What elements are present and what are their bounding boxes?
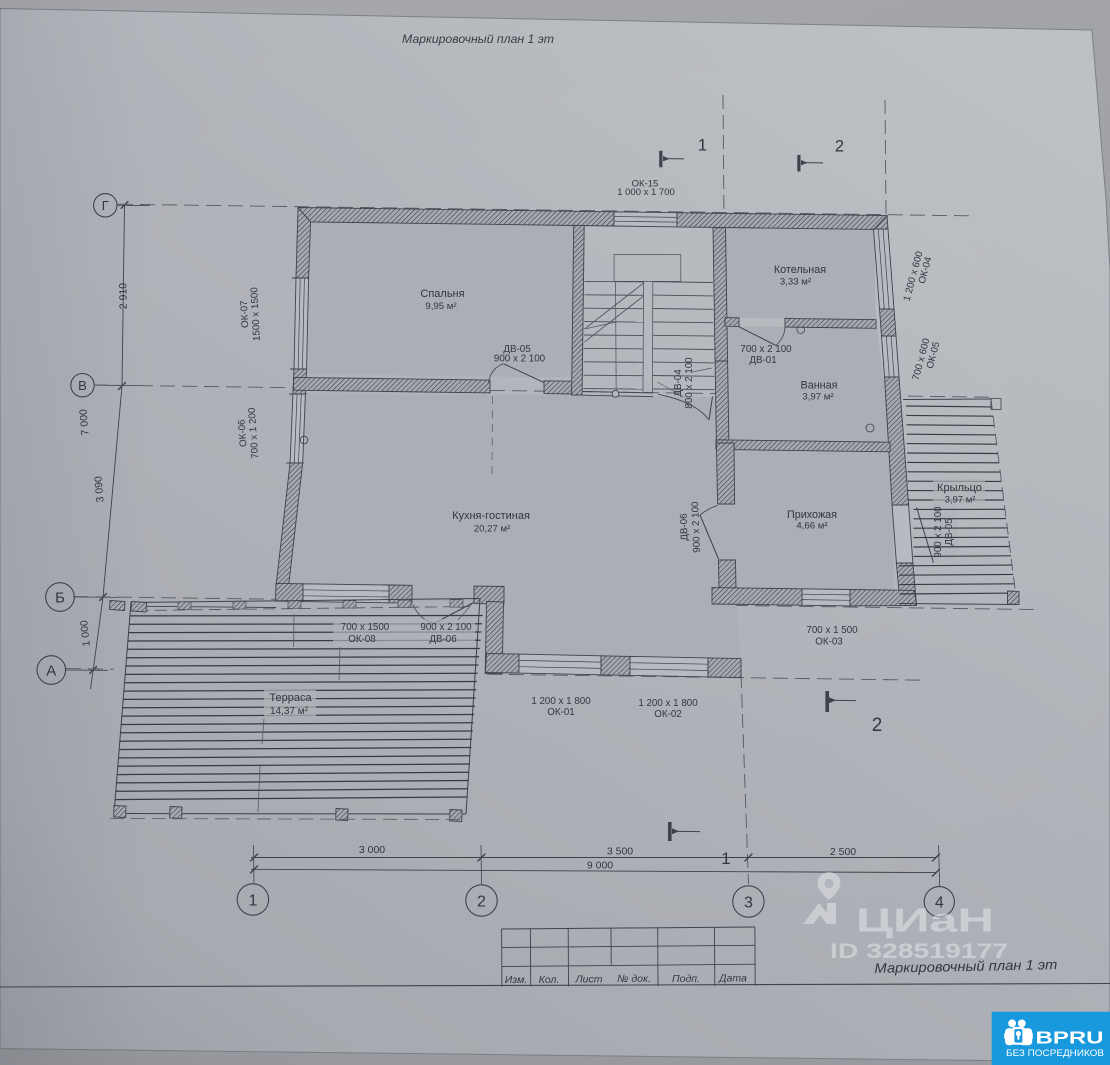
- svg-text:900 х 2 100: 900 х 2 100: [933, 506, 944, 558]
- svg-text:ДВ-04: ДВ-04: [673, 369, 684, 397]
- svg-text:2: 2: [835, 138, 844, 156]
- svg-text:3 500: 3 500: [607, 846, 633, 858]
- svg-text:Изм.: Изм.: [505, 974, 527, 986]
- svg-text:ДВ-06: ДВ-06: [679, 513, 691, 541]
- svg-text:800 х 2 100: 800 х 2 100: [684, 357, 695, 409]
- svg-text:1 200 х 1 800: 1 200 х 1 800: [531, 696, 591, 707]
- svg-text:2 500: 2 500: [830, 846, 856, 858]
- svg-text:ОК-02: ОК-02: [654, 709, 682, 720]
- svg-text:7 000: 7 000: [77, 408, 91, 435]
- svg-text:ОК-03: ОК-03: [815, 637, 843, 648]
- svg-text:В: В: [78, 378, 87, 393]
- svg-text:2: 2: [872, 715, 883, 736]
- svg-text:№ док.: № док.: [617, 973, 651, 985]
- svg-text:700 х 1500: 700 х 1500: [341, 622, 390, 633]
- svg-text:2 910: 2 910: [117, 283, 129, 310]
- svg-text:3,97 м²: 3,97 м²: [802, 392, 834, 403]
- svg-text:Спальня: Спальня: [420, 288, 464, 300]
- svg-text:Котельная: Котельная: [774, 264, 826, 276]
- svg-text:ДВ-05: ДВ-05: [944, 518, 955, 546]
- svg-text:2: 2: [477, 894, 486, 911]
- svg-text:Лист: Лист: [574, 974, 602, 986]
- svg-text:Маркировочный план 1 эт: Маркировочный план 1 эт: [402, 32, 554, 46]
- svg-text:3 090: 3 090: [92, 475, 106, 502]
- svg-text:ДВ-06: ДВ-06: [429, 634, 457, 645]
- svg-text:BPRU: BPRU: [1036, 1028, 1104, 1048]
- svg-text:Терраса: Терраса: [269, 692, 312, 704]
- svg-text:14,37 м²: 14,37 м²: [270, 706, 309, 717]
- svg-text:Г: Г: [102, 198, 109, 213]
- svg-text:9 000: 9 000: [587, 860, 613, 872]
- svg-text:ОК-01: ОК-01: [547, 707, 575, 718]
- svg-text:1 200 х 1 800: 1 200 х 1 800: [638, 698, 698, 709]
- svg-text:1: 1: [248, 893, 257, 910]
- svg-text:ЦИаН: ЦИаН: [856, 902, 994, 939]
- svg-text:700 х 1 500: 700 х 1 500: [806, 625, 858, 636]
- svg-text:БЕЗ ПОСРЕДНИКОВ: БЕЗ ПОСРЕДНИКОВ: [1006, 1048, 1104, 1058]
- svg-text:Ванная: Ванная: [801, 380, 838, 392]
- svg-text:Подп.: Подп.: [672, 973, 700, 985]
- svg-text:ДВ-01: ДВ-01: [749, 355, 776, 366]
- svg-text:4,66 м²: 4,66 м²: [796, 521, 828, 532]
- svg-text:20,27 м²: 20,27 м²: [474, 524, 511, 535]
- svg-text:А: А: [46, 663, 56, 680]
- svg-text:Б: Б: [55, 590, 65, 607]
- svg-text:3,97 м²: 3,97 м²: [945, 495, 976, 506]
- svg-text:Прихожая: Прихожая: [787, 509, 837, 521]
- svg-text:3,33 м²: 3,33 м²: [780, 277, 812, 288]
- svg-text:Крыльцо: Крыльцо: [937, 482, 982, 494]
- svg-text:1: 1: [721, 849, 730, 868]
- svg-text:900 х 2 100: 900 х 2 100: [420, 622, 472, 633]
- svg-text:9,95 м²: 9,95 м²: [425, 301, 457, 312]
- svg-text:700 х 2 100: 700 х 2 100: [740, 344, 792, 355]
- svg-text:1: 1: [698, 137, 707, 155]
- svg-text:900 х 2 100: 900 х 2 100: [690, 501, 703, 553]
- svg-text:ОК-08: ОК-08: [348, 634, 376, 645]
- svg-text:3 000: 3 000: [359, 844, 385, 856]
- svg-text:ID 328519177: ID 328519177: [830, 940, 1008, 963]
- svg-text:3: 3: [744, 895, 753, 912]
- svg-text:Дата: Дата: [718, 973, 747, 985]
- svg-text:1 000 х 1 700: 1 000 х 1 700: [617, 187, 675, 198]
- svg-text:900 х 2 100: 900 х 2 100: [494, 354, 546, 365]
- svg-text:Кол.: Кол.: [539, 974, 560, 986]
- svg-text:Кухня-гостиная: Кухня-гостиная: [452, 510, 530, 522]
